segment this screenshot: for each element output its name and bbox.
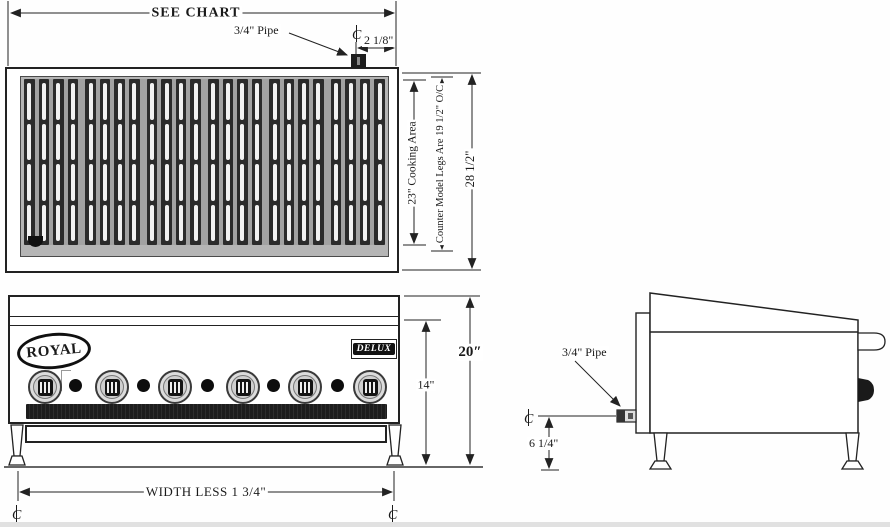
side-pipe-leader-arrow [575, 361, 620, 406]
side-back-leg [654, 433, 667, 461]
linework-overlay: CCCC [0, 0, 890, 527]
front-left-foot [9, 456, 25, 465]
side-gas-pipe-detail [628, 413, 633, 419]
dim-pipe-height-label: 6 1/4" [527, 437, 560, 450]
side-front-leg [846, 433, 859, 461]
side-knob-profile [858, 378, 874, 402]
front-right-leg [389, 425, 401, 456]
side-back-panel [636, 313, 650, 433]
charbroiler-spec-drawing: ROYAL DELUX [0, 0, 890, 527]
pipe-label-top: 3/4" Pipe [232, 24, 281, 37]
side-front-foot [842, 461, 863, 469]
front-right-foot [387, 456, 403, 465]
dim-overall-height-label: 20″ [456, 344, 483, 361]
pipe-label-side: 3/4" Pipe [560, 346, 609, 359]
side-front-ledge [858, 333, 885, 350]
side-body [650, 293, 858, 433]
front-left-leg [11, 425, 23, 456]
dim-counter-legs-label: Counter Model Legs Are 19 1/2" O/C [435, 83, 447, 245]
dim-width-label: WIDTH LESS 1 3/4" [144, 485, 268, 499]
pipe-leader-arrow [289, 33, 347, 55]
dim-see-chart-label: SEE CHART [149, 5, 242, 20]
side-back-foot [650, 461, 671, 469]
dim-cooking-area-label: 23" Cooking Area [407, 119, 420, 206]
side-gas-pipe-fitting [617, 410, 625, 422]
dim-pipe-offset-label: 2 1/8" [362, 34, 395, 47]
dim-overall-depth-label: 28 1/2" [464, 149, 478, 190]
dim-panel-height-label: 14" [416, 378, 437, 391]
